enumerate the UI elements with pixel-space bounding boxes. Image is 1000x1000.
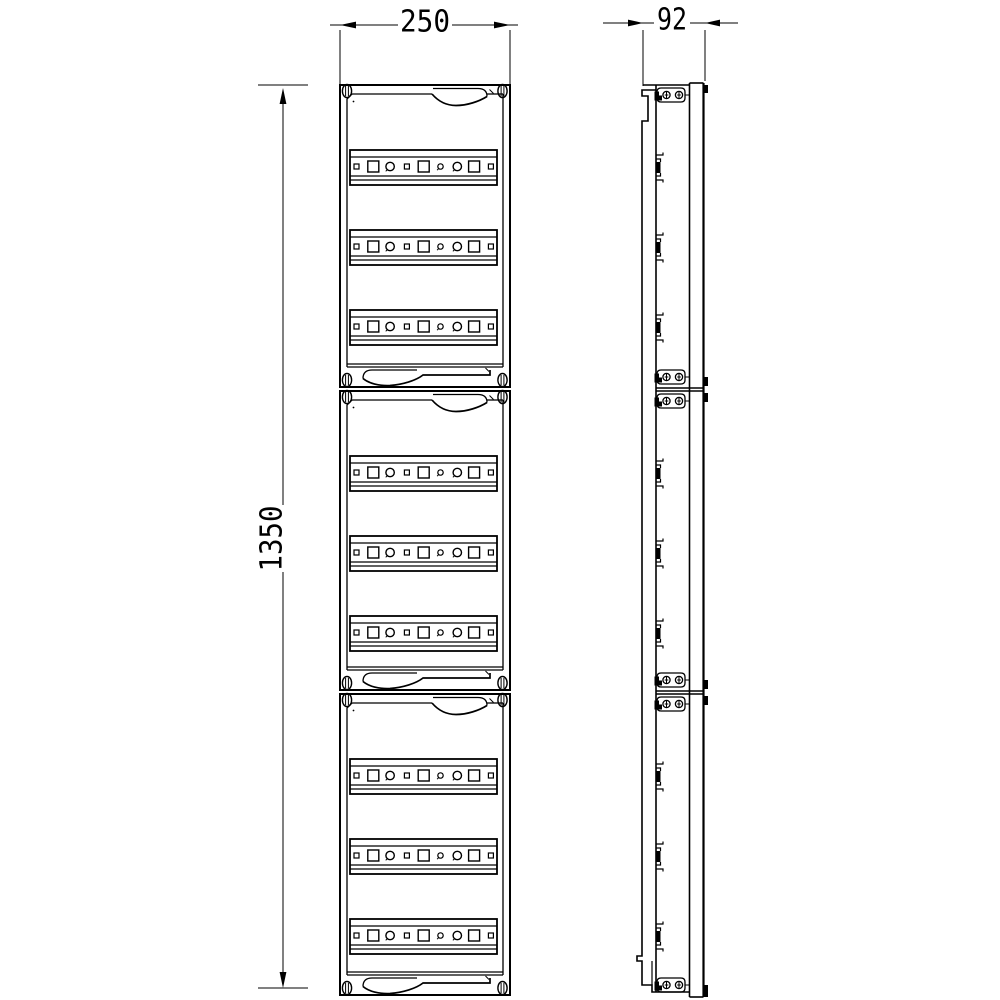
arrowhead-right-icon: [628, 20, 643, 27]
edge-tab: [704, 393, 709, 402]
rail-slot-square-small: [488, 630, 493, 635]
rail-slot-square-large: [368, 547, 379, 558]
rail-slot-square-small: [488, 933, 493, 938]
side-view-drawing: [637, 83, 708, 997]
rail-slot-circle: [453, 242, 462, 251]
mounting-bracket: [655, 88, 690, 102]
rail-slot-circle: [386, 162, 395, 171]
rail-slot-square-large: [368, 161, 379, 172]
mounting-bracket: [655, 697, 690, 711]
rail-slot-square-small: [354, 324, 359, 329]
rail-slot-square-small: [488, 470, 493, 475]
corner-screw: [342, 676, 351, 689]
din-rail-clip: [657, 619, 664, 649]
mounting-bracket: [655, 394, 690, 408]
corner-screw: [342, 981, 351, 994]
arrowhead-left-icon: [705, 20, 720, 27]
rail-slot-square-large: [368, 467, 379, 478]
rail-slot-square-large: [469, 161, 480, 172]
rail-slot-circle-small: [437, 933, 443, 939]
rail-slot-square-large: [368, 321, 379, 332]
rail-slot-square-small: [488, 773, 493, 778]
din-rail-clip: [657, 153, 664, 183]
corner-screw: [342, 373, 351, 386]
rail-slot-circle-small: [437, 630, 443, 636]
rail-slot-square-small: [488, 244, 493, 249]
rail-slot-circle: [386, 931, 395, 940]
rail-slot-circle: [453, 851, 462, 860]
rail-slot-square-large: [469, 467, 480, 478]
rail-slot-square-large: [368, 850, 379, 861]
rail-slot-square-small: [354, 244, 359, 249]
rail-slot-square-large: [368, 627, 379, 638]
rail-slot-square-large: [418, 627, 429, 638]
rail-slot-circle: [386, 242, 395, 251]
rail-slot-square-small: [488, 550, 493, 555]
side-body: [643, 83, 704, 997]
technical-drawing-page: 250 1350 92: [0, 0, 1000, 1000]
rail-slot-square-small: [488, 853, 493, 858]
dimension-side-depth-label: 92: [657, 3, 687, 38]
rail-slot-square-large: [469, 770, 480, 781]
rail-slot-square-large: [418, 467, 429, 478]
edge-tab: [704, 696, 709, 705]
rail-slot-square-large: [368, 770, 379, 781]
rail-slot-circle-small: [437, 470, 443, 476]
rail-slot-square-small: [404, 164, 409, 169]
edge-tab: [704, 377, 709, 386]
rail-slot-square-small: [404, 853, 409, 858]
din-rail-clip: [657, 539, 664, 569]
rail-slot-square-small: [404, 550, 409, 555]
rail-slot-square-large: [418, 547, 429, 558]
edge-tab: [704, 680, 709, 689]
handle-cutout-bottom: [363, 368, 490, 386]
din-rail-clip: [657, 922, 664, 952]
rail-slot-circle-small: [437, 324, 443, 330]
mounting-bracket: [655, 978, 690, 992]
rail-slot-circle-small: [437, 164, 443, 170]
din-rail: [350, 919, 497, 954]
corner-screw: [498, 981, 507, 994]
rail-slot-square-small: [354, 550, 359, 555]
rail-slot-square-small: [354, 470, 359, 475]
din-rail-clip: [657, 233, 664, 263]
front-module-1: [340, 84, 510, 387]
mounting-bracket: [655, 673, 690, 687]
rail-slot-square-large: [418, 321, 429, 332]
din-rail: [350, 839, 497, 874]
rail-slot-circle: [453, 548, 462, 557]
rail-slot-circle: [453, 322, 462, 331]
rail-slot-circle: [386, 628, 395, 637]
din-rail: [350, 310, 497, 345]
handle-cutout-bottom: [363, 976, 490, 994]
rail-slot-square-large: [469, 547, 480, 558]
din-rail: [350, 759, 497, 794]
rail-slot-circle: [386, 468, 395, 477]
front-view-drawing: [340, 84, 510, 995]
rail-slot-circle: [453, 162, 462, 171]
rail-slot-square-large: [418, 241, 429, 252]
handle-cutout-bottom: [363, 671, 490, 689]
rail-slot-circle-small: [437, 773, 443, 779]
rail-slot-square-small: [354, 933, 359, 938]
front-module-3: [340, 693, 510, 995]
rail-slot-square-large: [418, 161, 429, 172]
rail-slot-square-large: [469, 321, 480, 332]
rail-slot-square-small: [404, 630, 409, 635]
drawing-svg: 250 1350 92: [0, 0, 1000, 1000]
rail-slot-square-large: [469, 241, 480, 252]
rail-slot-circle: [453, 931, 462, 940]
rail-slot-square-large: [469, 850, 480, 861]
rail-slot-square-large: [368, 930, 379, 941]
din-rail: [350, 456, 497, 491]
rail-slot-square-small: [488, 324, 493, 329]
rail-slot-square-large: [418, 770, 429, 781]
din-rail: [350, 616, 497, 651]
rail-slot-circle-small: [437, 853, 443, 859]
rail-slot-circle: [386, 771, 395, 780]
arrowhead-right-icon: [494, 22, 510, 29]
handle-cutout-top: [432, 395, 494, 412]
rail-slot-circle-small: [437, 244, 443, 250]
rail-slot-square-small: [404, 244, 409, 249]
din-rail: [350, 230, 497, 265]
dimension-front-width-label: 250: [400, 5, 450, 40]
rail-slot-square-small: [404, 324, 409, 329]
rail-slot-circle: [453, 468, 462, 477]
edge-tab: [704, 85, 709, 93]
rail-slot-circle: [453, 771, 462, 780]
rail-slot-square-small: [404, 470, 409, 475]
edge-tab: [704, 985, 709, 997]
rail-slot-square-small: [354, 853, 359, 858]
dimension-front-height-label: 1350: [255, 506, 290, 572]
rail-slot-circle: [386, 851, 395, 860]
handle-cutout-top: [432, 698, 494, 715]
din-rail-clip: [657, 842, 664, 872]
rail-slot-square-small: [354, 164, 359, 169]
rail-slot-circle: [386, 322, 395, 331]
arrowhead-up-icon: [280, 88, 287, 104]
dimension-side-depth: 92: [603, 3, 738, 87]
rail-slot-circle: [453, 628, 462, 637]
mounting-bracket: [655, 370, 690, 384]
rail-slot-circle: [386, 548, 395, 557]
rail-slot-circle-small: [437, 550, 443, 556]
corner-screw: [498, 676, 507, 689]
corner-screw: [498, 373, 507, 386]
din-rail-clip: [657, 313, 664, 343]
dimension-front-width: 250: [330, 5, 518, 85]
handle-cutout-top: [432, 89, 494, 106]
front-module-2: [340, 390, 510, 690]
din-rail: [350, 150, 497, 185]
rail-slot-square-large: [368, 241, 379, 252]
rail-slot-square-large: [418, 930, 429, 941]
rail-slot-square-small: [404, 773, 409, 778]
rail-slot-square-small: [354, 630, 359, 635]
rail-slot-square-large: [469, 930, 480, 941]
rail-slot-square-small: [354, 773, 359, 778]
dimension-front-height: 1350: [255, 85, 309, 988]
rail-slot-square-small: [488, 164, 493, 169]
din-rail-clip: [657, 762, 664, 792]
rail-slot-square-large: [469, 627, 480, 638]
arrowhead-down-icon: [280, 972, 287, 988]
arrowhead-left-icon: [340, 22, 356, 29]
rail-slot-square-small: [404, 933, 409, 938]
rail-slot-square-large: [418, 850, 429, 861]
din-rail-clip: [657, 459, 664, 489]
din-rail: [350, 536, 497, 571]
